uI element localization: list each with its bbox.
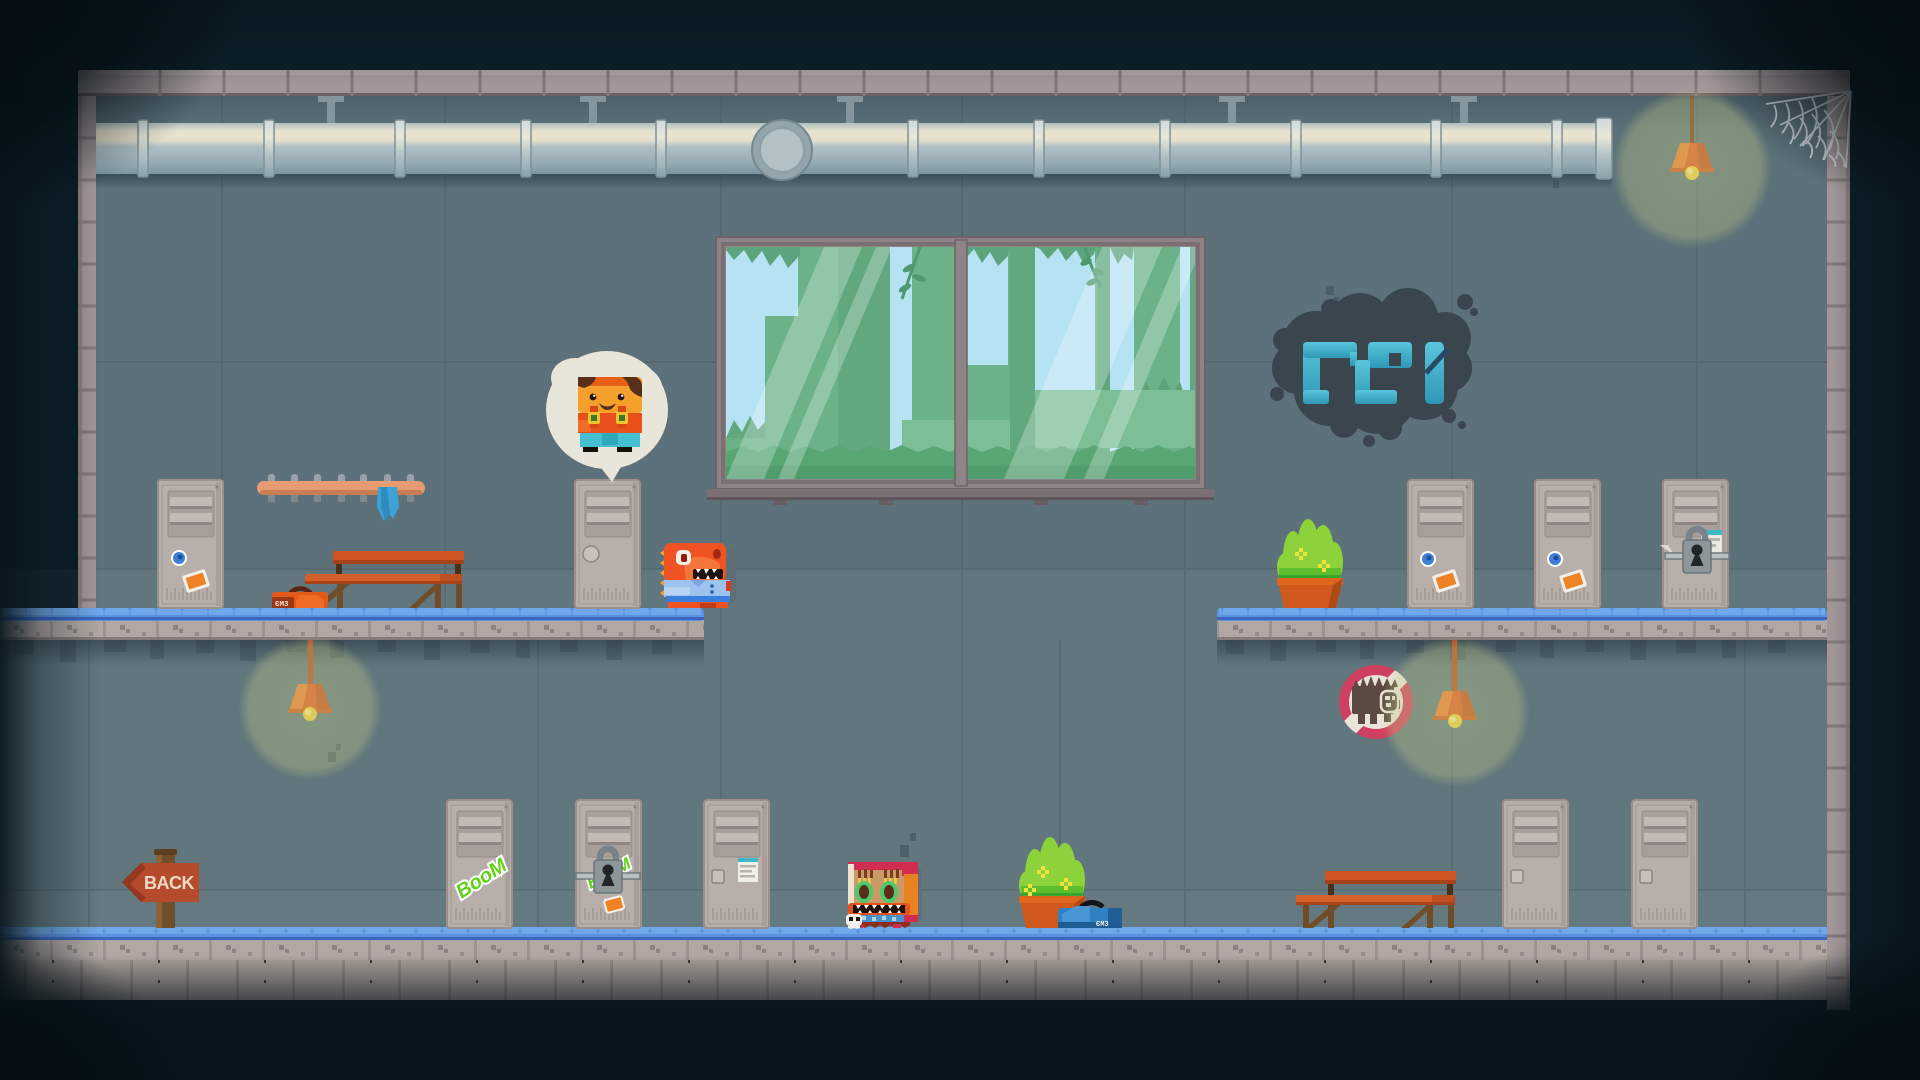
svg-text:ЄM3: ЄM3 bbox=[1096, 921, 1109, 929]
svg-text:ЄM3: ЄM3 bbox=[275, 601, 289, 609]
svg-text:BACK: BACK bbox=[144, 873, 194, 893]
